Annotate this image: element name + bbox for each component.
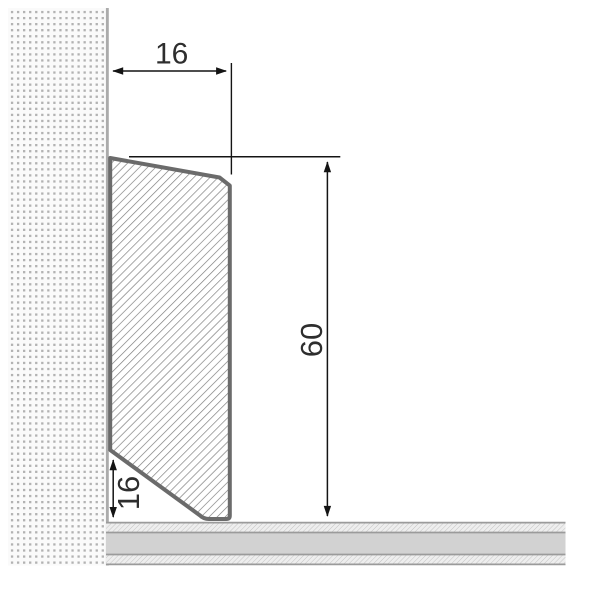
svg-text:16: 16 (111, 476, 146, 510)
svg-text:16: 16 (155, 38, 188, 71)
svg-text:60: 60 (294, 323, 329, 357)
